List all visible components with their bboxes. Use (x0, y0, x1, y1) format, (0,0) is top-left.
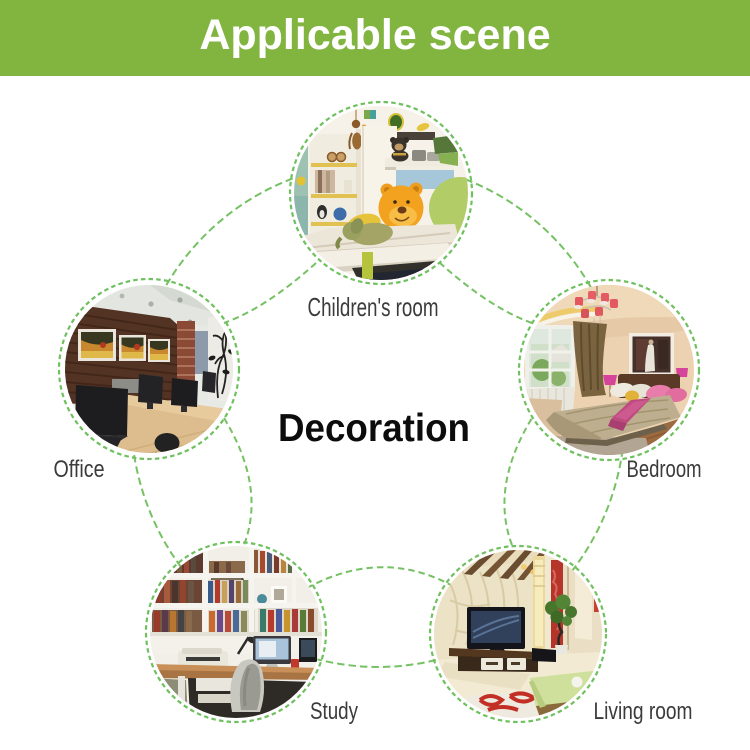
svg-text:Applicable scene: Applicable scene (199, 11, 550, 59)
svg-text:Study: Study (310, 698, 358, 725)
svg-text:Children's room: Children's room (308, 292, 439, 322)
svg-text:Living room: Living room (594, 698, 693, 725)
svg-text:Office: Office (54, 456, 105, 483)
svg-text:Decoration: Decoration (278, 407, 470, 450)
svg-text:Bedroom: Bedroom (627, 456, 702, 483)
